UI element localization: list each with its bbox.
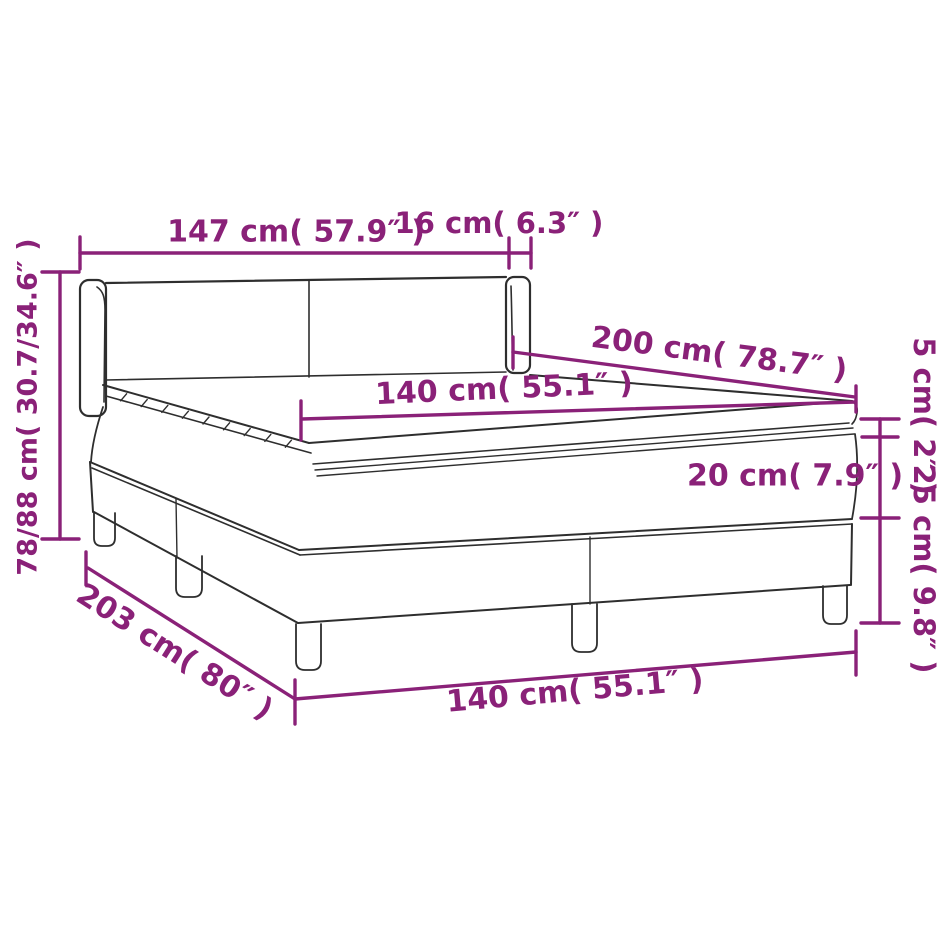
mattress-bottom-foot-edge xyxy=(299,519,852,550)
dim-label-frame-length: 203 cm( 80″ ) xyxy=(70,577,279,728)
dim-label-frame-width-bottom: 140 cm( 55.1″ ) xyxy=(445,662,705,719)
bed-leg-foot-left xyxy=(296,624,321,670)
headboard-left-wing xyxy=(80,280,106,416)
dim-label-mattress-width-top: 140 cm( 55.1″ ) xyxy=(374,366,633,412)
bed-leg-foot-right xyxy=(823,586,847,624)
topper-piping-dashes xyxy=(121,394,292,447)
dimension-labels: 147 cm( 57.9″ ) 16 cm( 6.3″ ) 78/88 cm( … xyxy=(13,206,942,728)
headboard-panel-top-edge xyxy=(106,277,506,283)
dimension-diagram: 147 cm( 57.9″ ) 16 cm( 6.3″ ) 78/88 cm( … xyxy=(0,0,947,947)
mattress-bottom-left-edge xyxy=(90,462,299,550)
box-bottom-foot-edge xyxy=(298,585,850,623)
dim-label-base-height: 25 cm( 9.8″ ) xyxy=(907,465,941,674)
box-top-left-edge xyxy=(92,468,300,555)
bed-leg-foot-middle xyxy=(572,604,597,652)
box-left-corner-edge xyxy=(90,462,93,512)
topper-left-band-edge xyxy=(106,396,311,453)
dim-label-mattress-thickness: 20 cm( 7.9″ ) xyxy=(687,459,903,494)
box-left-seam xyxy=(176,499,177,558)
box-right-corner-edge xyxy=(851,524,852,585)
topper-left-top-edge xyxy=(103,385,309,443)
dim-label-wing-depth: 16 cm( 6.3″ ) xyxy=(395,206,604,240)
dim-label-overall-height: 78/88 cm( 30.7/34.6″ ) xyxy=(13,238,44,575)
headboard-right-wing xyxy=(506,277,530,373)
box-top-foot-edge xyxy=(300,524,852,555)
diagram-canvas: 147 cm( 57.9″ ) 16 cm( 6.3″ ) 78/88 cm( … xyxy=(0,0,947,947)
bed-leg-left-middle xyxy=(176,556,202,597)
dim-label-headboard-width: 147 cm( 57.9″ ) xyxy=(167,215,425,250)
